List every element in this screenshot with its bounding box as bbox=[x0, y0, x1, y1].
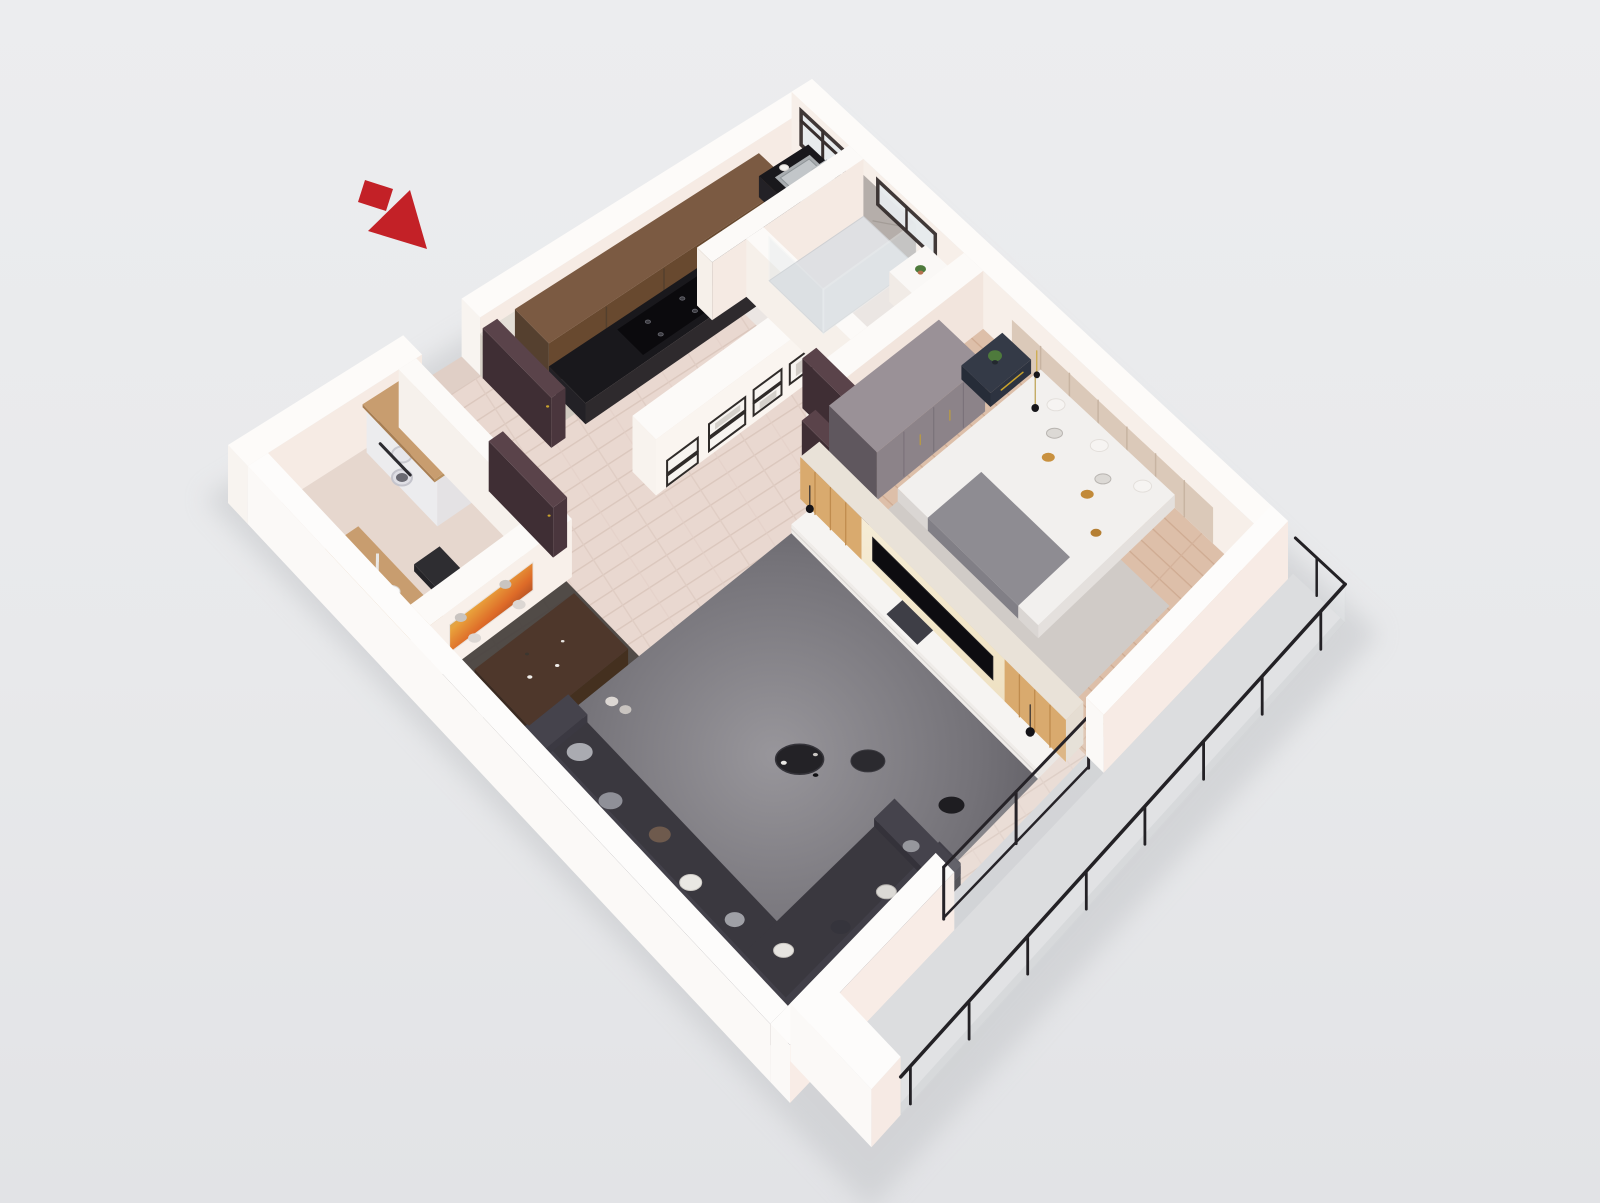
food-plate bbox=[780, 165, 789, 171]
pillow-mustard-3 bbox=[1091, 529, 1102, 537]
coffee-table-small bbox=[851, 750, 885, 772]
washer-drum bbox=[396, 473, 408, 482]
pillow-mustard-2 bbox=[1081, 490, 1094, 499]
coffee-decor-dark bbox=[813, 773, 819, 777]
dining-decor-2 bbox=[555, 664, 559, 667]
sofa-pillow-4 bbox=[680, 875, 702, 891]
bedroom-plant bbox=[988, 350, 1002, 361]
tv-pendant-globe-2 bbox=[1026, 727, 1035, 737]
bedroom-plant-pot bbox=[992, 360, 998, 364]
sofa-pillow-6 bbox=[774, 943, 794, 957]
sofa-pillow-5 bbox=[725, 912, 745, 927]
sofa-pillow-9 bbox=[903, 840, 920, 852]
sofa-pillow-2 bbox=[599, 792, 623, 809]
pendant-globe-1 bbox=[1034, 371, 1040, 378]
burner-1 bbox=[645, 320, 650, 323]
sofa-pillow-3 bbox=[649, 827, 671, 843]
burner-3 bbox=[658, 333, 663, 336]
dining-decor-3 bbox=[561, 640, 565, 642]
chair-4-back bbox=[499, 580, 511, 589]
coffee-decor-1 bbox=[781, 761, 787, 765]
coffee-decor-2 bbox=[813, 753, 818, 756]
pillow-striped-1 bbox=[1047, 428, 1063, 438]
dining-decor-vase bbox=[525, 653, 529, 656]
floor-plan-page bbox=[0, 0, 1600, 1203]
bathroom-plant-pot bbox=[918, 271, 924, 275]
side-stool bbox=[939, 797, 965, 814]
chair-3-back bbox=[455, 613, 467, 622]
chair-2-seat bbox=[605, 697, 618, 707]
entrance-arrow-icon-head bbox=[358, 180, 393, 211]
burner-2 bbox=[680, 297, 685, 300]
burner-4 bbox=[692, 309, 697, 312]
sofa-pillow-1 bbox=[567, 743, 593, 761]
pillow-white-3 bbox=[1134, 480, 1152, 492]
sofa-pillow-7 bbox=[831, 920, 851, 934]
chair-4-seat bbox=[513, 600, 526, 610]
pillow-white-2 bbox=[1090, 440, 1108, 452]
pillow-striped-2 bbox=[1095, 474, 1111, 484]
pendant-globe-2 bbox=[1031, 404, 1039, 412]
tv-pendant-globe-1 bbox=[806, 505, 814, 513]
laundry-door-handle bbox=[548, 515, 551, 517]
coffee-table-large bbox=[776, 744, 824, 774]
entry-door-handle bbox=[546, 405, 549, 407]
pillow-white-1 bbox=[1047, 399, 1065, 411]
pillow-mustard-1 bbox=[1042, 453, 1055, 462]
chair-3-seat bbox=[468, 633, 481, 643]
floor-plan-render bbox=[0, 0, 1600, 1203]
chair-2-back bbox=[619, 705, 631, 714]
dining-decor-1 bbox=[527, 675, 532, 678]
